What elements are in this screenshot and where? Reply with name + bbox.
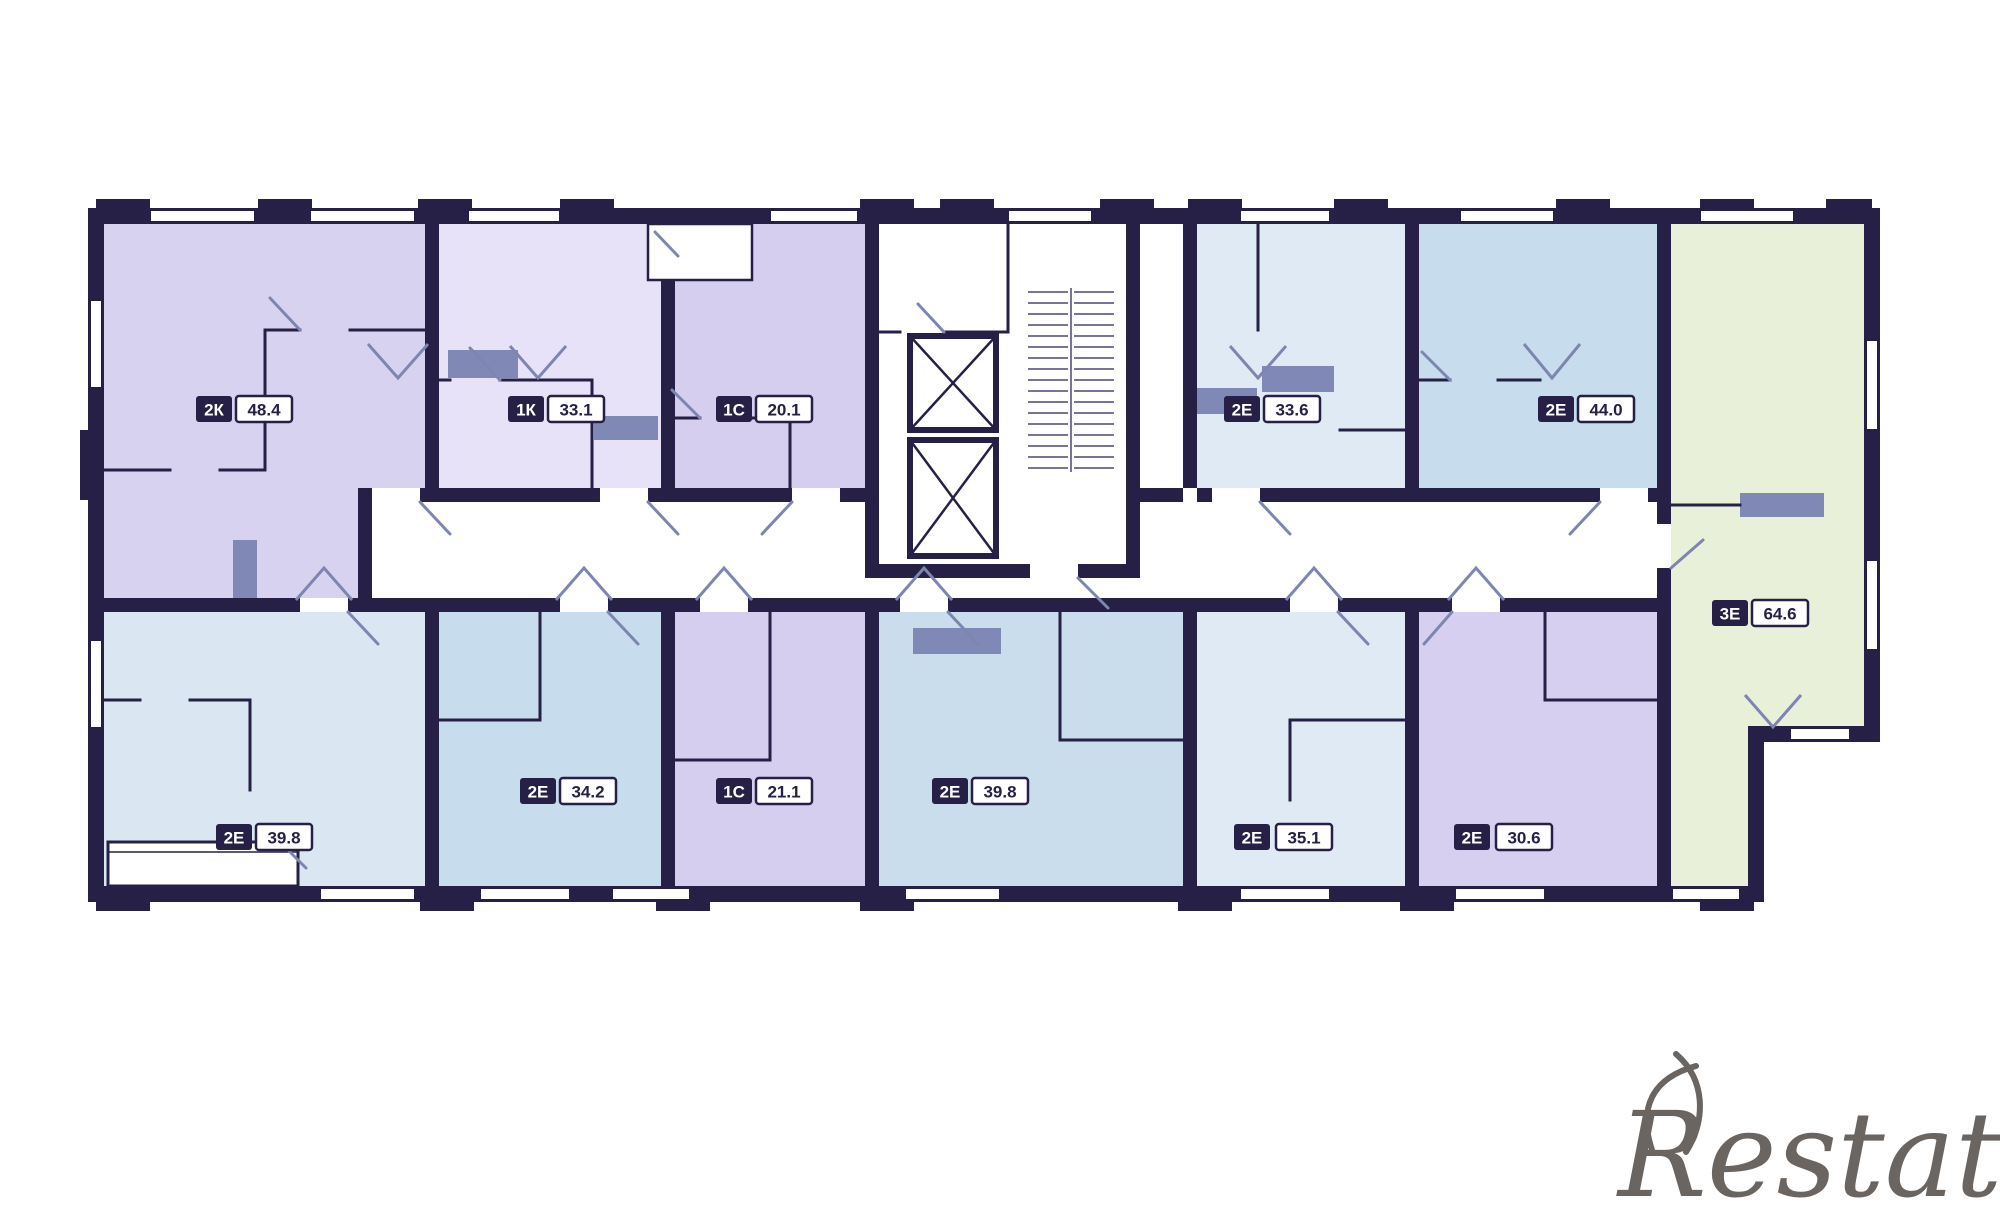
svg-text:64.6: 64.6 <box>1763 605 1796 624</box>
svg-text:35.1: 35.1 <box>1287 829 1320 848</box>
label-2k-48-4: 2К 48.4 <box>196 396 292 422</box>
staircase <box>1028 288 1114 472</box>
label-2e-34-2: 2Е 34.2 <box>520 778 616 804</box>
svg-text:1С: 1С <box>723 783 745 802</box>
label-2e-30-6: 2Е 30.6 <box>1454 824 1552 850</box>
svg-text:2Е: 2Е <box>1242 829 1263 848</box>
label-2e-33-6: 2Е 33.6 <box>1224 396 1320 422</box>
label-2e-39-8-left: 2Е 39.8 <box>216 824 312 850</box>
label-2e-35-1: 2Е 35.1 <box>1234 824 1332 850</box>
svg-text:2Е: 2Е <box>1546 401 1567 420</box>
svg-text:2К: 2К <box>204 401 224 420</box>
apartment-2e-34-2[interactable] <box>439 612 661 886</box>
svg-text:39.8: 39.8 <box>983 783 1016 802</box>
svg-text:39.8: 39.8 <box>267 829 300 848</box>
label-1s-21-1: 1С 21.1 <box>716 778 812 804</box>
apartment-2e-33-6[interactable] <box>1197 224 1405 488</box>
svg-text:33.6: 33.6 <box>1275 401 1308 420</box>
label-1s-20-1: 1С 20.1 <box>716 396 812 422</box>
svg-text:1С: 1С <box>723 401 745 420</box>
apartment-2e-44-0[interactable] <box>1419 224 1657 488</box>
svg-text:34.2: 34.2 <box>571 783 604 802</box>
svg-text:2Е: 2Е <box>1232 401 1253 420</box>
watermark-restate: Restate <box>1616 1054 2000 1223</box>
svg-text:48.4: 48.4 <box>247 401 281 420</box>
svg-text:21.1: 21.1 <box>767 783 800 802</box>
apartment-3e-64-6[interactable] <box>1671 224 1864 886</box>
svg-text:20.1: 20.1 <box>767 401 800 420</box>
label-3e-64-6: 3Е 64.6 <box>1712 600 1808 626</box>
facade-notch <box>648 224 752 280</box>
svg-text:2Е: 2Е <box>528 783 549 802</box>
svg-text:30.6: 30.6 <box>1507 829 1540 848</box>
svg-text:2Е: 2Е <box>940 783 961 802</box>
svg-text:2Е: 2Е <box>224 829 245 848</box>
svg-text:Restate: Restate <box>1616 1086 2000 1223</box>
svg-text:3Е: 3Е <box>1720 605 1741 624</box>
label-1k-33-1: 1К 33.1 <box>508 396 604 422</box>
svg-text:2Е: 2Е <box>1462 829 1483 848</box>
floor-plan-page: 2К 48.4 1К 33.1 1С 20.1 2Е 33.6 2Е 44.0 <box>0 0 2000 1223</box>
svg-text:44.0: 44.0 <box>1589 401 1622 420</box>
label-2e-39-8-mid: 2Е 39.8 <box>932 778 1028 804</box>
floor-plan: 2К 48.4 1К 33.1 1С 20.1 2Е 33.6 2Е 44.0 <box>0 0 2000 1223</box>
svg-text:1К: 1К <box>516 401 536 420</box>
label-2e-44-0: 2Е 44.0 <box>1538 396 1634 422</box>
svg-text:33.1: 33.1 <box>559 401 592 420</box>
